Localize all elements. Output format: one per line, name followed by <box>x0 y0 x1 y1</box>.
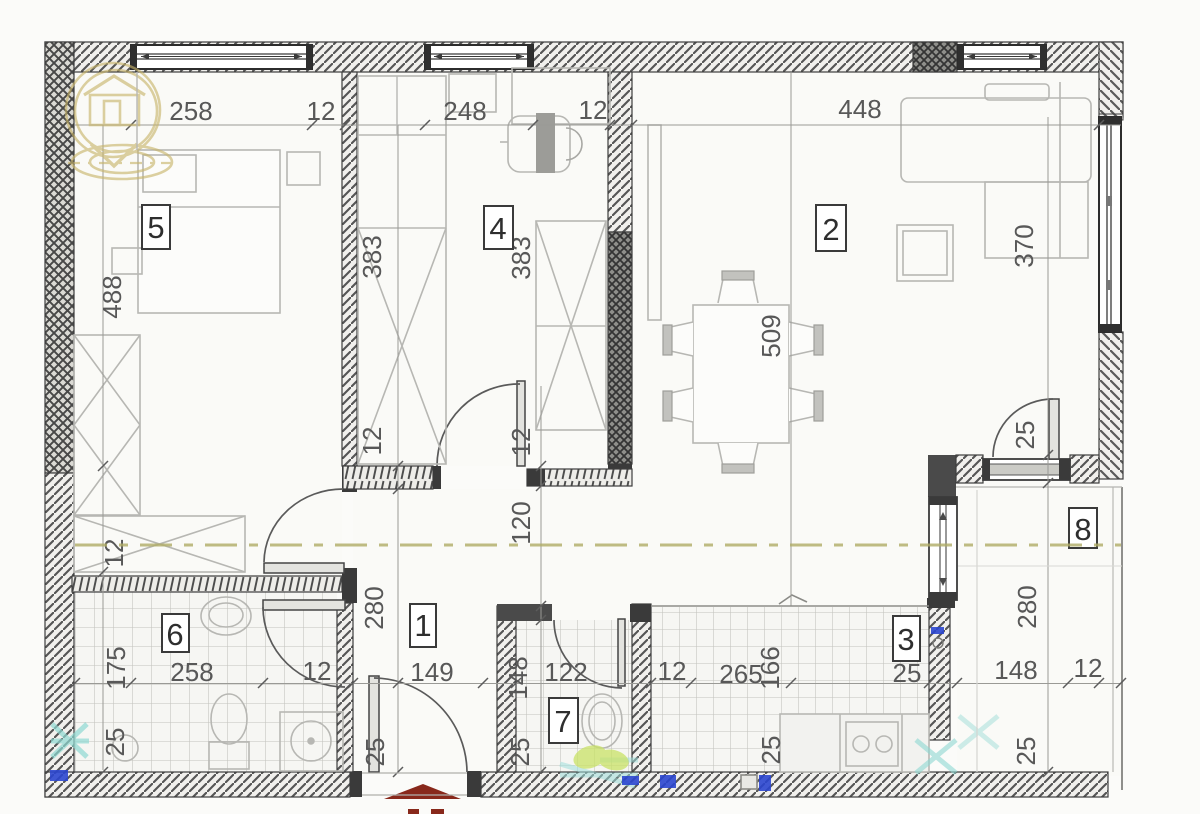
svg-text:4: 4 <box>489 211 506 246</box>
svg-text:7: 7 <box>554 704 571 739</box>
svg-text:25: 25 <box>1010 421 1040 450</box>
svg-text:25: 25 <box>756 736 786 765</box>
svg-text:6: 6 <box>166 617 183 652</box>
svg-text:12: 12 <box>307 96 336 126</box>
svg-text:25: 25 <box>1011 737 1041 766</box>
svg-text:12: 12 <box>658 656 687 686</box>
svg-text:258: 258 <box>169 96 212 126</box>
svg-text:383: 383 <box>357 235 387 278</box>
svg-text:148: 148 <box>503 656 533 699</box>
svg-text:258: 258 <box>170 657 213 687</box>
svg-text:12: 12 <box>506 428 536 457</box>
svg-text:370: 370 <box>1009 224 1039 267</box>
svg-text:5: 5 <box>147 210 164 245</box>
svg-text:120: 120 <box>506 501 536 544</box>
svg-text:448: 448 <box>838 94 881 124</box>
svg-text:12: 12 <box>357 427 387 456</box>
svg-text:280: 280 <box>359 586 389 629</box>
svg-text:25: 25 <box>505 738 535 767</box>
svg-text:25: 25 <box>360 738 390 767</box>
svg-text:12: 12 <box>579 95 608 125</box>
svg-text:25: 25 <box>100 728 130 757</box>
svg-text:12: 12 <box>99 539 129 568</box>
svg-text:149: 149 <box>410 657 453 687</box>
svg-text:12: 12 <box>303 656 332 686</box>
svg-text:25: 25 <box>893 658 922 688</box>
svg-text:122: 122 <box>544 657 587 687</box>
svg-text:2: 2 <box>822 212 839 247</box>
svg-text:3: 3 <box>897 622 914 657</box>
svg-text:1: 1 <box>414 608 431 643</box>
svg-text:175: 175 <box>101 646 131 689</box>
svg-text:509: 509 <box>756 314 786 357</box>
svg-text:8: 8 <box>1074 512 1091 547</box>
svg-text:166: 166 <box>755 646 785 689</box>
svg-text:12: 12 <box>1074 653 1103 683</box>
svg-text:280: 280 <box>1012 585 1042 628</box>
svg-text:148: 148 <box>994 655 1037 685</box>
svg-text:488: 488 <box>97 275 127 318</box>
svg-text:248: 248 <box>443 96 486 126</box>
